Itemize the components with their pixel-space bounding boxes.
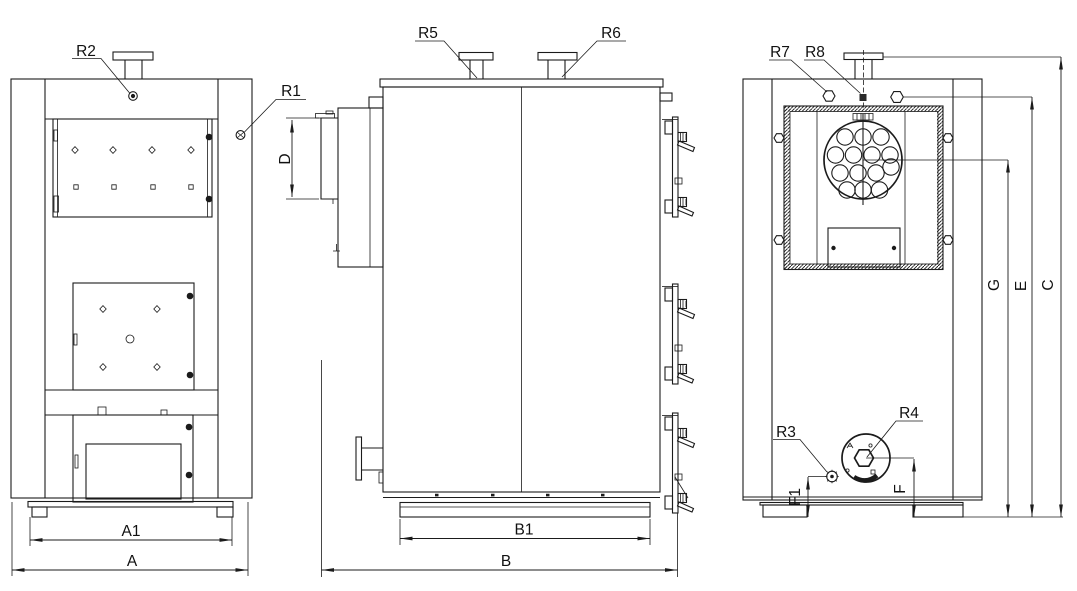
rear-access-plate xyxy=(828,228,900,267)
panel-bolt xyxy=(943,236,953,245)
dim-b: B xyxy=(322,360,678,577)
flue-duct xyxy=(321,118,338,199)
rear-view: R7 R8 xyxy=(743,44,1063,517)
tube-bundle xyxy=(824,114,902,206)
r8-fitting xyxy=(860,94,867,101)
callout-r4-label: R4 xyxy=(899,405,919,422)
panel-bolt xyxy=(943,134,953,143)
callout-r3-label: R3 xyxy=(776,424,796,441)
hinge-mark xyxy=(74,334,77,345)
side-tab-left xyxy=(369,97,383,108)
vent-holes xyxy=(100,306,160,371)
front-outline xyxy=(11,79,252,498)
callout-r4: R4 xyxy=(842,405,923,482)
callout-r6-label: R6 xyxy=(601,25,621,42)
middle-door-panel xyxy=(73,283,194,390)
door-bolt xyxy=(187,293,194,300)
r7-fitting xyxy=(823,91,835,101)
bottom-rivets xyxy=(435,494,605,497)
r1-fitting-cross xyxy=(238,133,244,138)
drain-tap xyxy=(333,244,340,251)
front-lower-band xyxy=(45,390,218,415)
side-outlet-flange xyxy=(356,437,383,483)
flue-chimney-box xyxy=(316,108,384,267)
hinge-mark xyxy=(54,130,58,141)
rear-top-fitting xyxy=(891,92,904,103)
callout-r8-label: R8 xyxy=(805,44,825,61)
front-base xyxy=(28,502,233,518)
dim-label-f1: F1 xyxy=(787,488,804,506)
callout-r2-label: R2 xyxy=(76,43,96,60)
callout-r8: R8 xyxy=(804,44,861,94)
dim-label-b: B xyxy=(501,553,511,570)
side-tab-right xyxy=(660,93,672,101)
dim-label-f: F xyxy=(892,484,909,493)
hinge-cluster-middle xyxy=(662,284,695,384)
side-flange-pipe-r5 xyxy=(459,53,493,80)
dim-label-g: G xyxy=(986,279,1003,291)
side-flange-pipe-r6 xyxy=(538,53,577,80)
dim-d: D xyxy=(277,118,319,199)
boiler-technical-drawing: A1 A R2 R1 R5 xyxy=(0,0,1077,586)
peep-hole xyxy=(126,335,134,343)
callout-r2: R2 xyxy=(72,43,130,94)
foot xyxy=(217,507,233,517)
dim-label-d: D xyxy=(277,153,294,164)
foot xyxy=(913,505,963,517)
front-view: A1 A R2 R1 xyxy=(11,43,306,576)
callout-r5-label: R5 xyxy=(418,25,438,42)
callout-r7-label: R7 xyxy=(770,44,790,61)
door-bolt xyxy=(186,424,193,431)
drawing-canvas: A1 A R2 R1 R5 xyxy=(0,0,1077,586)
callout-r1: R1 xyxy=(236,83,306,139)
hinge-cluster-bottom xyxy=(662,413,695,513)
dim-label-c: C xyxy=(1040,279,1057,290)
door-bolt xyxy=(206,134,213,141)
side-view: R5 R6 D xyxy=(277,25,695,577)
dim-f: F xyxy=(866,458,914,517)
callout-r1-label: R1 xyxy=(281,83,301,100)
callout-r6: R6 xyxy=(562,25,626,77)
vent-slots-row xyxy=(74,185,193,189)
dim-g: G xyxy=(863,160,1008,517)
dim-a1: A1 xyxy=(30,517,232,546)
hinge-cluster-top xyxy=(662,117,695,217)
dim-label-a: A xyxy=(127,553,138,570)
r3-fitting xyxy=(825,470,839,484)
vent-holes-row xyxy=(72,147,194,154)
side-top-lid xyxy=(380,79,663,87)
door-bolt xyxy=(186,472,193,479)
hinge-mark xyxy=(75,455,78,468)
door-bolt xyxy=(206,196,213,203)
front-frame-lines xyxy=(45,79,218,498)
side-bottom xyxy=(383,494,660,517)
ash-door xyxy=(73,415,193,502)
foot xyxy=(32,507,47,517)
dim-c: C xyxy=(883,57,1061,517)
callout-r5: R5 xyxy=(415,25,477,78)
skid-base xyxy=(400,503,650,518)
dim-b1: B1 xyxy=(400,519,650,545)
front-flange-pipe xyxy=(113,52,153,79)
dim-label-e: E xyxy=(1013,281,1030,291)
panel-bolt xyxy=(774,236,784,245)
panel-bolt xyxy=(774,134,784,143)
dim-label-a1: A1 xyxy=(122,523,141,540)
door-bolt xyxy=(187,372,194,379)
dim-label-b1: B1 xyxy=(515,522,534,539)
callout-r3: R3 xyxy=(773,424,839,483)
upper-door-panel xyxy=(53,119,212,217)
